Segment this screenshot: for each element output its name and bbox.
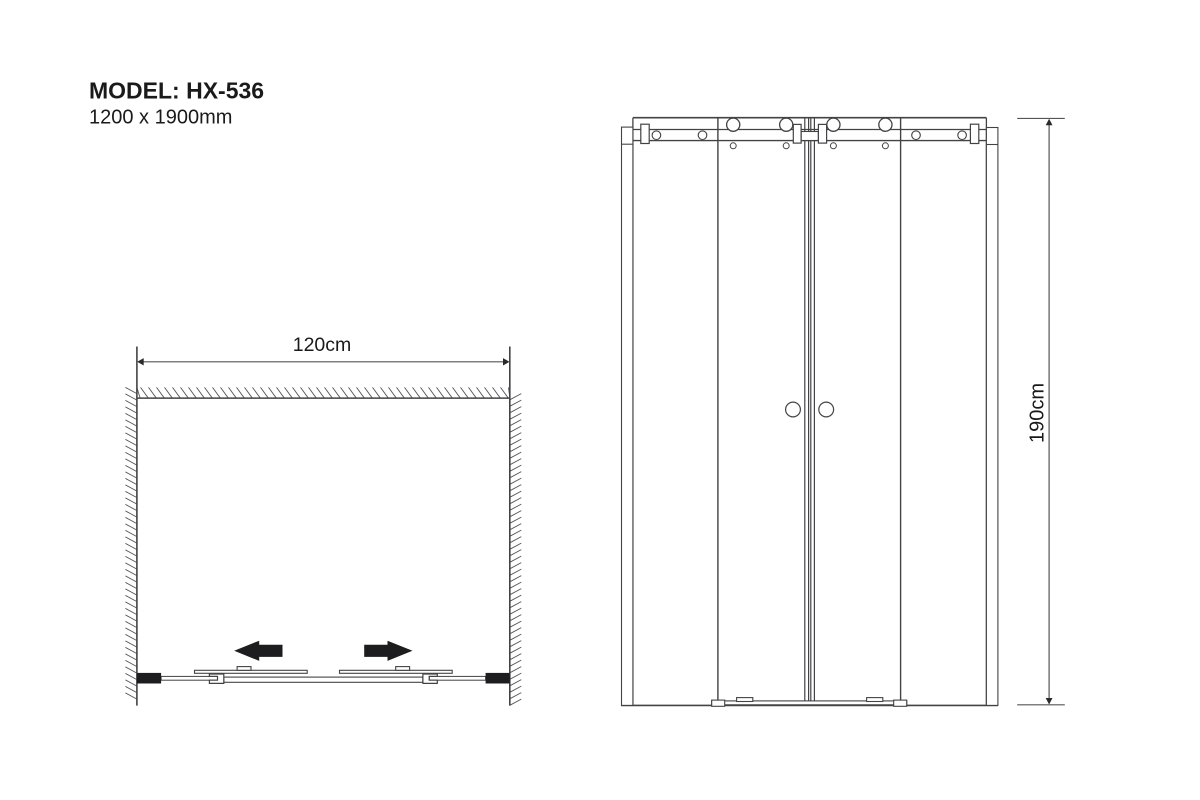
- svg-text:190cm: 190cm: [1027, 383, 1049, 443]
- svg-text:1200 x 1900mm: 1200 x 1900mm: [89, 106, 232, 128]
- svg-text:120cm: 120cm: [293, 334, 352, 356]
- svg-text:MODEL: HX-536: MODEL: HX-536: [89, 77, 264, 103]
